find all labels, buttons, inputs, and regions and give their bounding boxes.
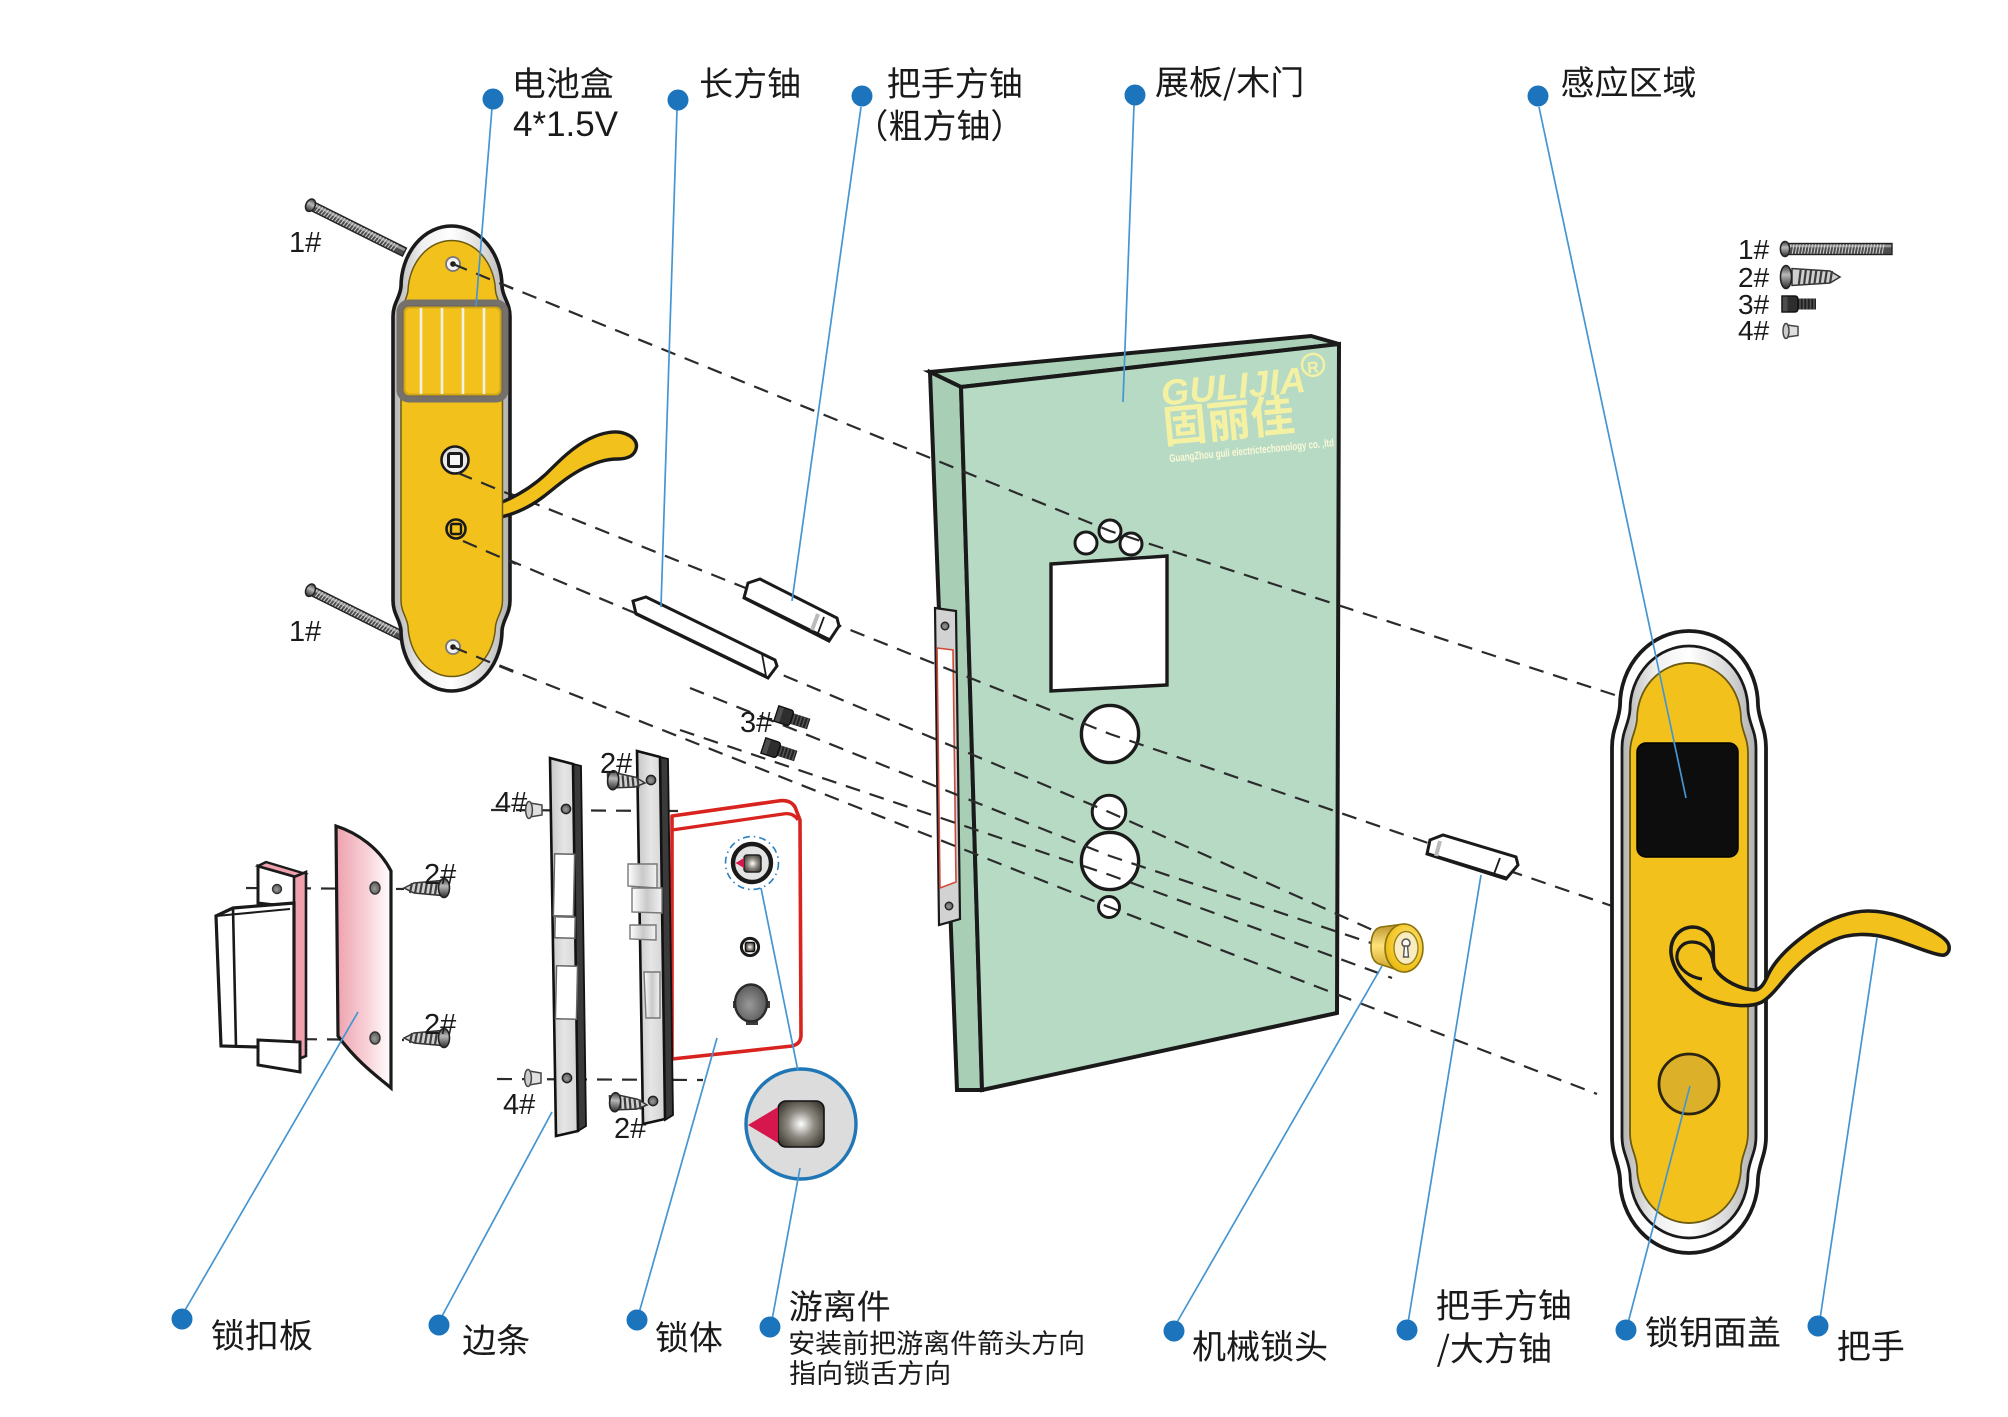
svg-text:R: R xyxy=(1307,359,1321,377)
svg-text:4#: 4# xyxy=(495,787,527,819)
svg-text:3#: 3# xyxy=(740,707,772,739)
svg-text:2#: 2# xyxy=(424,1009,456,1041)
svg-text:4*1.5V: 4*1.5V xyxy=(513,105,619,144)
svg-text:4#: 4# xyxy=(503,1089,535,1121)
svg-text:1#: 1# xyxy=(289,616,321,648)
svg-text:4#: 4# xyxy=(1738,315,1770,346)
svg-text:2#: 2# xyxy=(424,859,456,891)
svg-text:2#: 2# xyxy=(600,748,632,780)
svg-text:1#: 1# xyxy=(1738,234,1770,265)
svg-text:2#: 2# xyxy=(614,1113,646,1145)
svg-text:1#: 1# xyxy=(289,227,321,259)
